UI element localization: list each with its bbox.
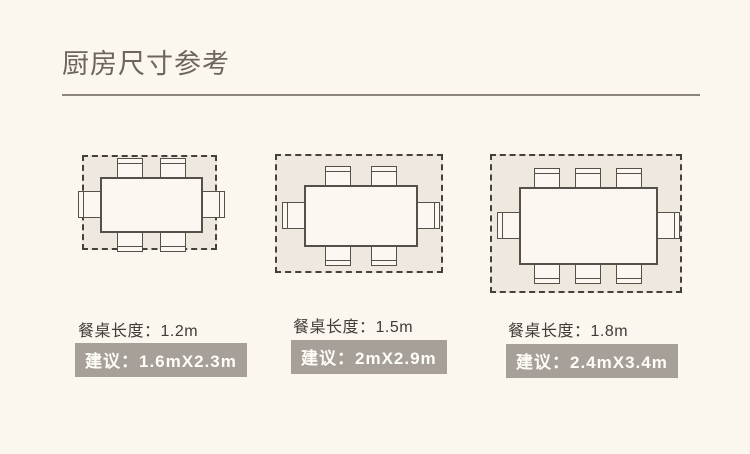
chair-backrest [372, 260, 396, 265]
chair-backrest [372, 167, 396, 172]
chair [497, 212, 521, 239]
chair-backrest [118, 246, 142, 251]
chair [282, 202, 306, 229]
chair [201, 191, 225, 218]
chair-backrest [326, 167, 350, 172]
chair-backrest [617, 278, 641, 283]
chair [534, 263, 560, 284]
chair-backrest [617, 169, 641, 174]
chair-backrest [434, 203, 439, 228]
chair-backrest [161, 159, 185, 164]
dining-table-top [304, 185, 418, 247]
chair [616, 168, 642, 189]
title-divider [62, 94, 700, 96]
chair-backrest [219, 192, 224, 217]
table-length-label: 餐桌长度：1.8m [508, 317, 628, 341]
chair [616, 263, 642, 284]
chair [325, 166, 351, 187]
chair [117, 158, 143, 179]
kitchen-size-reference-infographic: 厨房尺寸参考 餐桌长度：1.2m 建议：1.6mX2.3m 餐桌长度：1.5m … [0, 0, 750, 454]
table-length-label: 餐桌长度：1.2m [78, 317, 198, 341]
chair [656, 212, 680, 239]
chair [534, 168, 560, 189]
chair-backrest [79, 192, 84, 217]
chair-backrest [674, 213, 679, 238]
chair [78, 191, 102, 218]
chair [371, 166, 397, 187]
chair [575, 168, 601, 189]
dining-table-top [100, 177, 203, 233]
suggested-size-badge: 建议：2mX2.9m [291, 340, 447, 374]
chair-backrest [535, 169, 559, 174]
dining-table-top [519, 187, 658, 265]
table-clearance-plan-medium [275, 154, 443, 273]
table-clearance-plan-large [490, 154, 682, 293]
chair-backrest [161, 246, 185, 251]
chair-backrest [498, 213, 503, 238]
chair-backrest [283, 203, 288, 228]
page-title: 厨房尺寸参考 [62, 42, 230, 81]
suggested-size-badge: 建议：2.4mX3.4m [506, 344, 678, 378]
chair-backrest [535, 278, 559, 283]
chair [160, 158, 186, 179]
chair-backrest [118, 159, 142, 164]
chair-backrest [326, 260, 350, 265]
chair [325, 245, 351, 266]
chair [117, 231, 143, 252]
chair-backrest [576, 278, 600, 283]
suggested-size-badge: 建议：1.6mX2.3m [75, 343, 247, 377]
table-length-label: 餐桌长度：1.5m [293, 313, 413, 337]
chair [160, 231, 186, 252]
chair [416, 202, 440, 229]
chair [371, 245, 397, 266]
chair-backrest [576, 169, 600, 174]
chair [575, 263, 601, 284]
table-clearance-plan-small [82, 155, 217, 250]
